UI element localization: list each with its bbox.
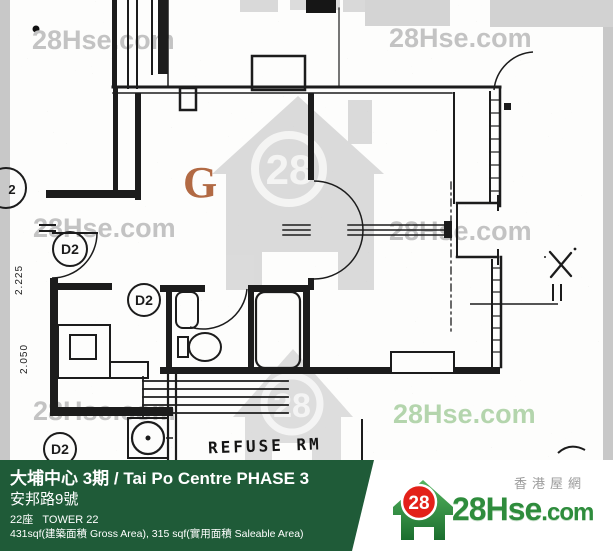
watermark-green-text: 28Hse.com xyxy=(393,399,536,429)
logo-site-main: 28Hse xyxy=(452,491,541,527)
logo-tagline: 香港屋網 xyxy=(514,473,586,492)
watermark-text: 28Hse.com xyxy=(32,25,175,55)
watermark-number: 28 xyxy=(266,146,313,193)
floorplan-svg: 28Hse.com 28Hse.com 28Hse.com 28Hse.com … xyxy=(0,0,613,460)
refuse-room-label: REFUSE RM xyxy=(208,434,322,457)
door-label-text: 2 xyxy=(8,182,15,197)
door-label-text: D2 xyxy=(51,441,69,457)
watermark-text: 28Hse.com xyxy=(33,213,176,243)
watermark-text: 28Hse.com xyxy=(389,216,532,246)
watermark-text: 28Hse.com xyxy=(389,23,532,53)
logo-number: 28 xyxy=(408,493,429,514)
door-label-text: D2 xyxy=(61,241,79,257)
unit-label: G xyxy=(183,158,217,207)
watermark-number: 28 xyxy=(273,387,311,425)
dimension-label: 2.225 xyxy=(14,265,25,295)
door-label-text: D2 xyxy=(135,292,153,308)
info-bar: 大埔中心 3期 / Tai Po Centre PHASE 3 安邦路9號 22… xyxy=(0,460,613,551)
floorplan-image: 28Hse.com 28Hse.com 28Hse.com 28Hse.com … xyxy=(0,0,613,551)
logo-site-suffix: .com xyxy=(541,499,593,526)
dimension-label: 2.050 xyxy=(19,344,30,374)
28hse-house-icon: 28 xyxy=(391,476,455,544)
logo-site-text: 28Hse.com xyxy=(452,491,593,528)
28hse-logo: 28 28Hse.com 香港屋網 xyxy=(0,460,613,551)
